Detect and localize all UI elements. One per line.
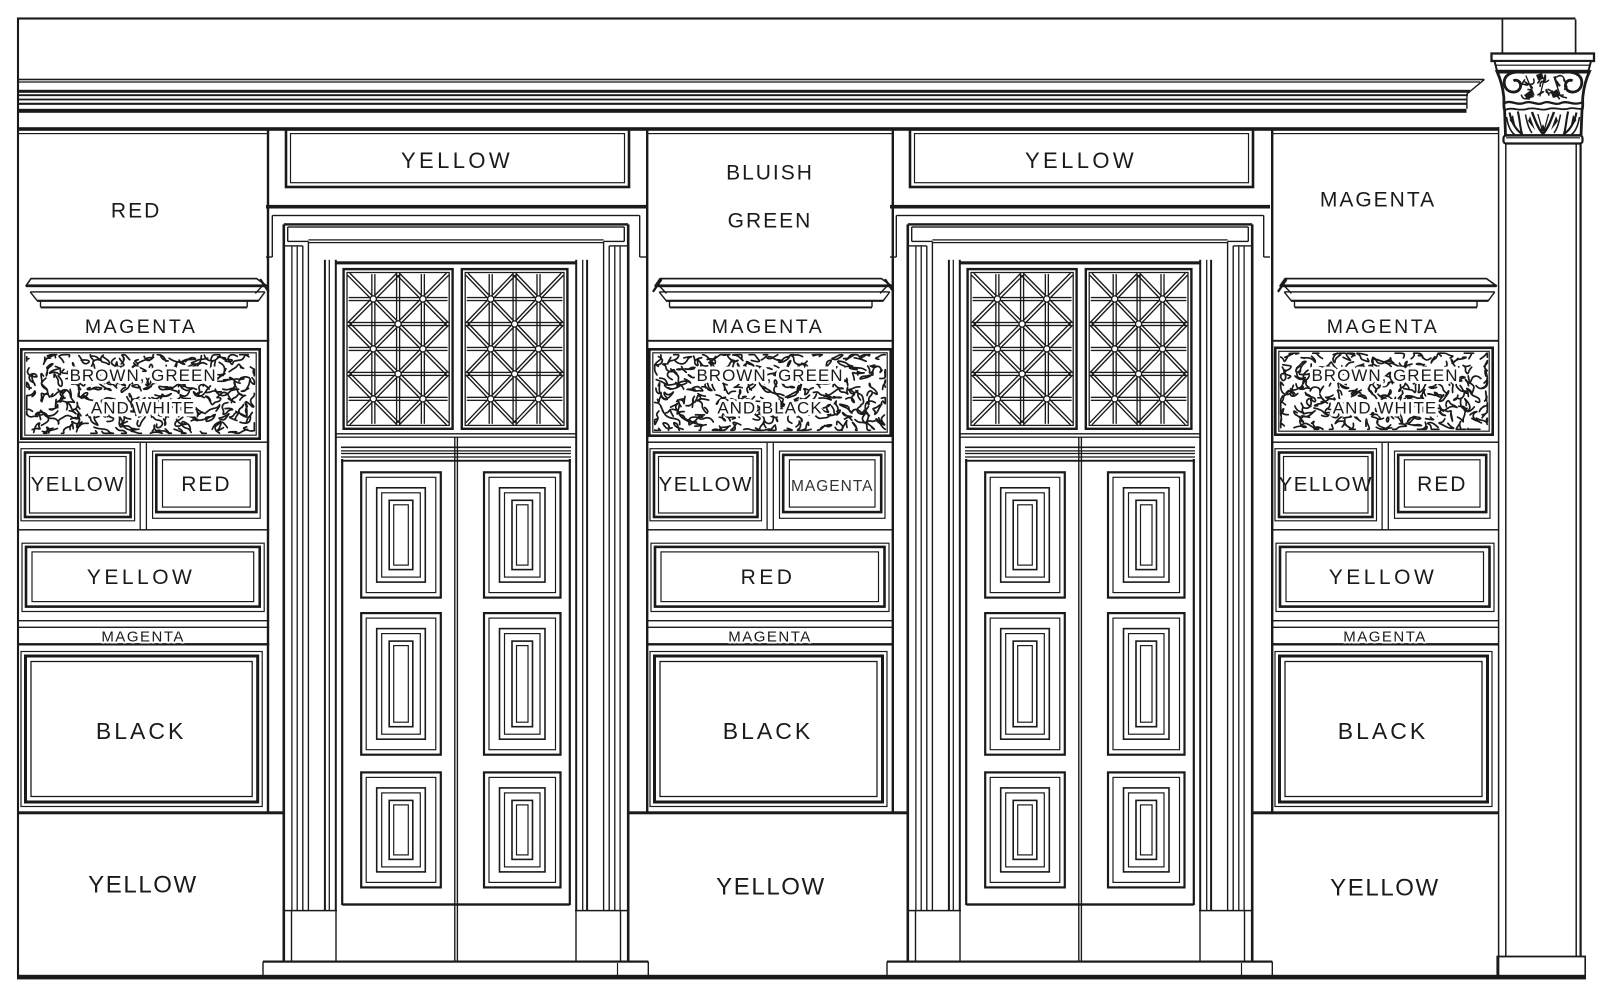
svg-text:RED: RED: [181, 473, 231, 496]
svg-text:YELLOW: YELLOW: [659, 473, 753, 496]
svg-text:YELLOW: YELLOW: [1330, 875, 1440, 902]
svg-text:YELLOW: YELLOW: [1279, 473, 1373, 496]
svg-text:MAGENTA: MAGENTA: [85, 316, 197, 338]
svg-text:YELLOW: YELLOW: [88, 872, 198, 899]
svg-text:YELLOW: YELLOW: [1329, 566, 1438, 589]
svg-text:MAGENTA: MAGENTA: [712, 316, 824, 338]
svg-text:YELLOW: YELLOW: [87, 566, 196, 589]
svg-text:BLACK: BLACK: [723, 718, 813, 744]
svg-text:MAGENTA: MAGENTA: [1320, 189, 1436, 212]
svg-text:BLUISH: BLUISH: [726, 162, 814, 185]
svg-text:MAGENTA: MAGENTA: [1327, 316, 1439, 338]
svg-text:YELLOW: YELLOW: [31, 473, 125, 496]
svg-text:RED: RED: [1417, 473, 1467, 496]
svg-text:AND BLACK: AND BLACK: [717, 398, 822, 417]
svg-text:MAGENTA: MAGENTA: [791, 478, 874, 495]
svg-text:BROWN, GREEN: BROWN, GREEN: [70, 366, 217, 385]
svg-text:BROWN, GREEN: BROWN, GREEN: [1311, 366, 1458, 385]
svg-text:GREEN: GREEN: [728, 210, 813, 233]
svg-text:YELLOW: YELLOW: [401, 148, 513, 173]
svg-text:RED: RED: [741, 566, 796, 589]
svg-text:BLACK: BLACK: [96, 718, 186, 744]
svg-text:MAGENTA: MAGENTA: [1343, 629, 1427, 646]
svg-text:YELLOW: YELLOW: [716, 874, 826, 901]
svg-text:YELLOW: YELLOW: [1025, 148, 1137, 173]
svg-text:BROWN, GREEN: BROWN, GREEN: [696, 366, 843, 385]
svg-text:MAGENTA: MAGENTA: [101, 629, 185, 646]
svg-text:BLACK: BLACK: [1338, 718, 1428, 744]
svg-text:AND WHITE: AND WHITE: [91, 398, 195, 417]
svg-text:AND WHITE: AND WHITE: [1333, 398, 1437, 417]
svg-text:RED: RED: [111, 200, 161, 223]
svg-text:MAGENTA: MAGENTA: [728, 629, 812, 646]
